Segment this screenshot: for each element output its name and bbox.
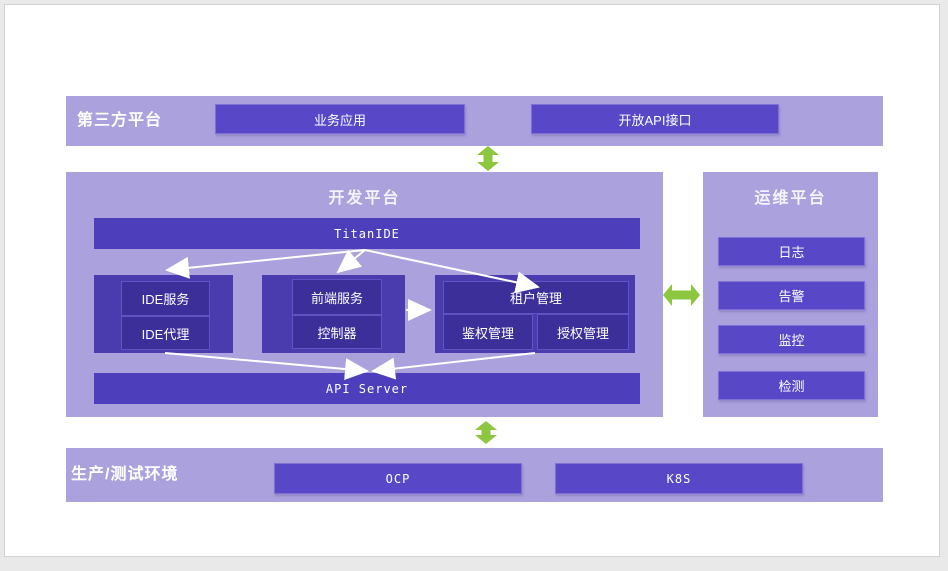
frontend-service-box: 前端服务 <box>292 279 382 315</box>
tenant-mgmt-header: 租户管理 <box>443 281 629 314</box>
ocp-box: OCP <box>274 463 522 494</box>
dev-platform-panel: 开发平台 TitanIDE IDE服务 IDE代理 前端服务 控制器 租户管理 … <box>66 172 663 417</box>
third-party-title: 第三方平台 <box>77 96 162 146</box>
ide-service-group: IDE服务 IDE代理 <box>94 275 233 353</box>
dev-platform-title: 开发平台 <box>66 184 663 208</box>
ide-service-box: IDE服务 <box>121 281 210 316</box>
open-api-box: 开放API接口 <box>531 104 779 134</box>
frontend-group: 前端服务 控制器 <box>262 275 405 353</box>
third-party-band: 第三方平台 业务应用 开放API接口 <box>66 96 883 146</box>
production-band: 生产/测试环境 OCP K8S <box>66 448 883 502</box>
authn-mgmt-box: 鉴权管理 <box>443 314 533 350</box>
ops-platform-panel: 运维平台 日志 告警 监控 检测 <box>703 172 878 417</box>
authz-mgmt-box: 授权管理 <box>537 314 629 350</box>
business-app-box: 业务应用 <box>215 104 465 134</box>
monitor-box: 监控 <box>718 325 865 354</box>
ide-proxy-box: IDE代理 <box>121 316 210 350</box>
titanide-bar: TitanIDE <box>94 218 640 249</box>
detect-box: 检测 <box>718 371 865 400</box>
tenant-group: 租户管理 鉴权管理 授权管理 <box>435 275 635 353</box>
ops-platform-title: 运维平台 <box>703 184 878 208</box>
architecture-diagram: 第三方平台 业务应用 开放API接口 开发平台 TitanIDE IDE服务 I… <box>0 0 948 571</box>
log-box: 日志 <box>718 237 865 266</box>
controller-box: 控制器 <box>292 315 382 349</box>
alert-box: 告警 <box>718 281 865 310</box>
k8s-box: K8S <box>555 463 803 494</box>
production-title: 生产/测试环境 <box>71 448 178 502</box>
api-server-bar: API Server <box>94 373 640 404</box>
